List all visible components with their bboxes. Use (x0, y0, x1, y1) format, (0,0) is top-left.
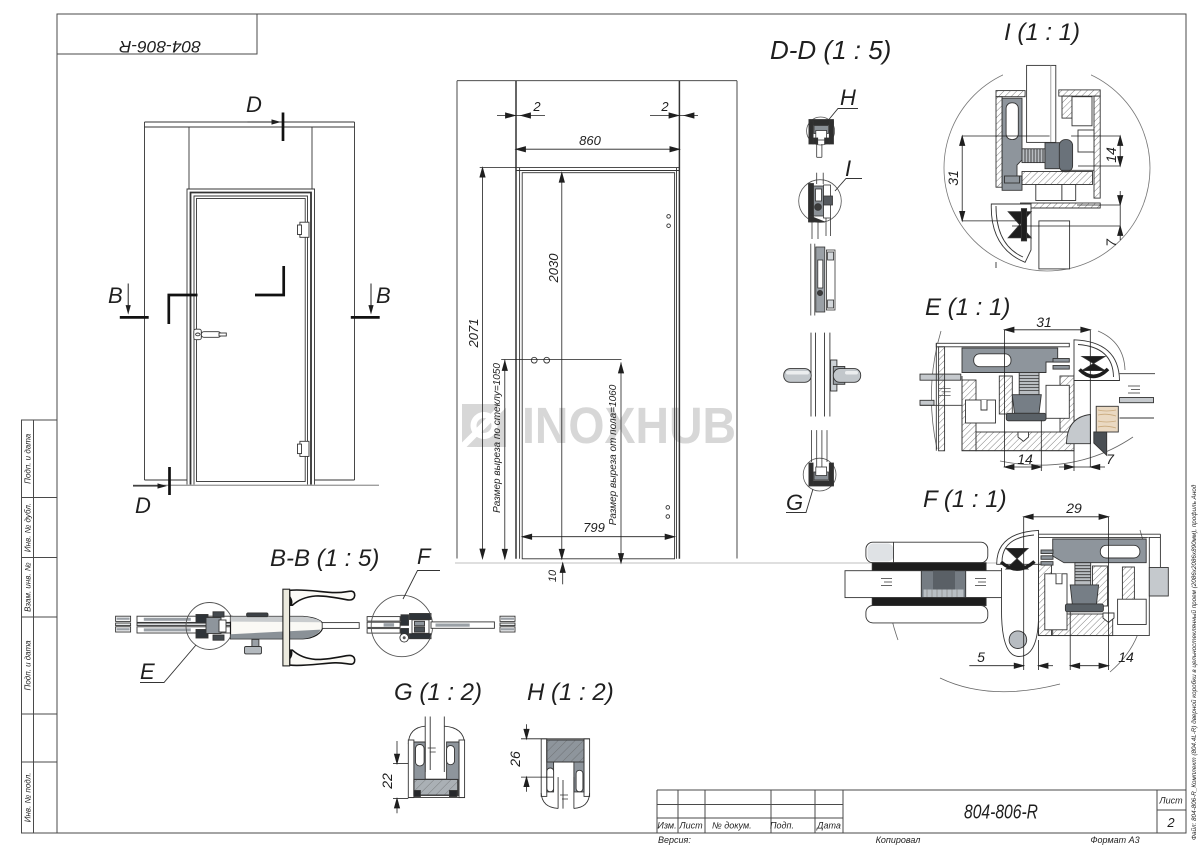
svg-text:F: F (417, 544, 432, 569)
svg-text:H: H (840, 85, 856, 110)
svg-text:E (1 : 1): E (1 : 1) (925, 294, 1010, 321)
svg-text:7: 7 (1106, 451, 1115, 467)
svg-text:D: D (135, 493, 151, 518)
svg-text:E: E (140, 659, 155, 684)
svg-text:B: B (108, 283, 123, 308)
svg-text:Размер выреза по стеклу=1050: Размер выреза по стеклу=1050 (492, 363, 503, 513)
svg-text:Лист: Лист (678, 821, 703, 831)
svg-text:D: D (246, 92, 262, 117)
svg-text:14: 14 (1017, 451, 1033, 467)
svg-text:I (1 : 1): I (1 : 1) (1004, 19, 1080, 46)
svg-text:804-806-R: 804-806-R (119, 37, 201, 56)
svg-text:Подп. и дата: Подп. и дата (24, 433, 33, 484)
svg-text:G (1 : 2): G (1 : 2) (394, 679, 482, 706)
svg-text:Инв. № подл.: Инв. № подл. (24, 773, 33, 823)
svg-text:D-D (1 : 5): D-D (1 : 5) (770, 35, 891, 65)
svg-text:Копировал: Копировал (876, 835, 921, 845)
svg-text:26: 26 (507, 751, 523, 768)
svg-text:Инв. № дубл.: Инв. № дубл. (24, 503, 33, 552)
svg-text:7: 7 (1103, 238, 1119, 247)
svg-text:10: 10 (547, 569, 559, 582)
svg-text:2: 2 (1166, 815, 1175, 830)
svg-text:799: 799 (583, 520, 605, 535)
svg-text:Взам. инв. №: Взам. инв. № (24, 562, 33, 612)
svg-text:22: 22 (379, 773, 395, 790)
svg-text:Версия:: Версия: (658, 835, 691, 845)
svg-text:2: 2 (660, 99, 669, 114)
svg-text:2030: 2030 (546, 253, 561, 284)
svg-text:№ докум.: № докум. (712, 821, 752, 831)
svg-text:H (1 : 2): H (1 : 2) (527, 679, 614, 706)
svg-text:INOXHUB: INOXHUB (522, 397, 736, 454)
svg-text:Размер выреза от пола=1060: Размер выреза от пола=1060 (608, 384, 619, 525)
svg-text:Подп.: Подп. (770, 821, 794, 831)
svg-text:2: 2 (532, 99, 541, 114)
svg-text:31: 31 (1036, 314, 1052, 330)
svg-text:804-806-R: 804-806-R (964, 802, 1038, 824)
svg-text:I: I (845, 156, 851, 181)
svg-text:29: 29 (1065, 500, 1082, 516)
svg-text:5: 5 (977, 649, 985, 665)
svg-text:F (1 : 1): F (1 : 1) (923, 486, 1007, 513)
svg-text:B-B (1 : 5): B-B (1 : 5) (270, 545, 379, 572)
svg-text:31: 31 (945, 170, 961, 186)
svg-text:Формат A3: Формат A3 (1090, 835, 1139, 845)
svg-text:Дата: Дата (816, 821, 841, 831)
svg-text:Лист: Лист (1158, 796, 1183, 806)
svg-text:860: 860 (579, 133, 601, 148)
svg-text:G: G (786, 490, 803, 515)
svg-text:Файл: 804-806-R_Комплект (804.: Файл: 804-806-R_Комплект (804.4L-R) двер… (1190, 484, 1198, 840)
svg-text:2071: 2071 (466, 319, 481, 349)
svg-text:Подп. и дата: Подп. и дата (24, 640, 33, 691)
svg-text:Изм.: Изм. (657, 821, 676, 831)
svg-text:14: 14 (1118, 649, 1134, 665)
svg-text:B: B (376, 283, 391, 308)
svg-text:14: 14 (1103, 147, 1119, 163)
